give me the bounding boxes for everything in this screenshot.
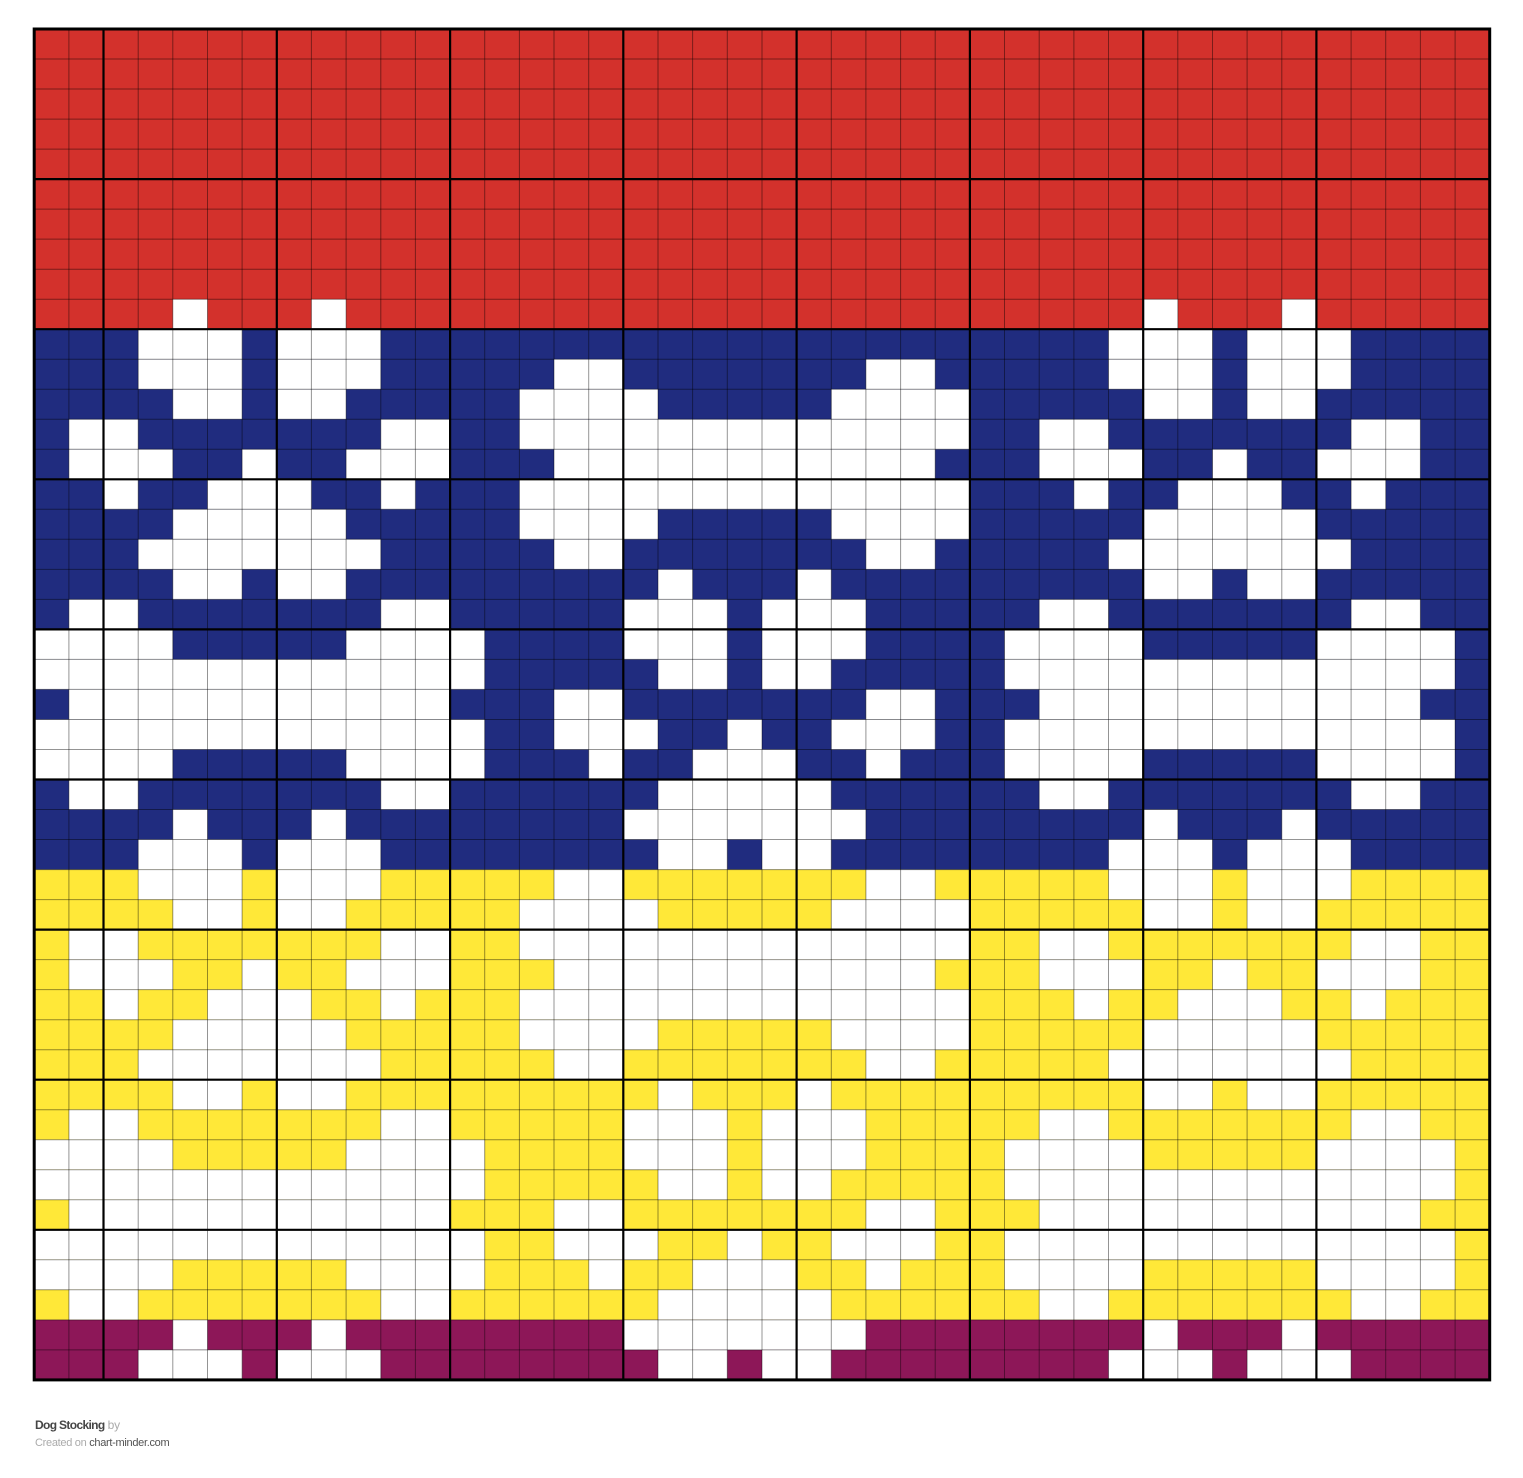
svg-text:Dog Stocking by: Dog Stocking by: [35, 1418, 120, 1432]
svg-text:Created on chart-minder.com: Created on chart-minder.com: [35, 1437, 169, 1449]
